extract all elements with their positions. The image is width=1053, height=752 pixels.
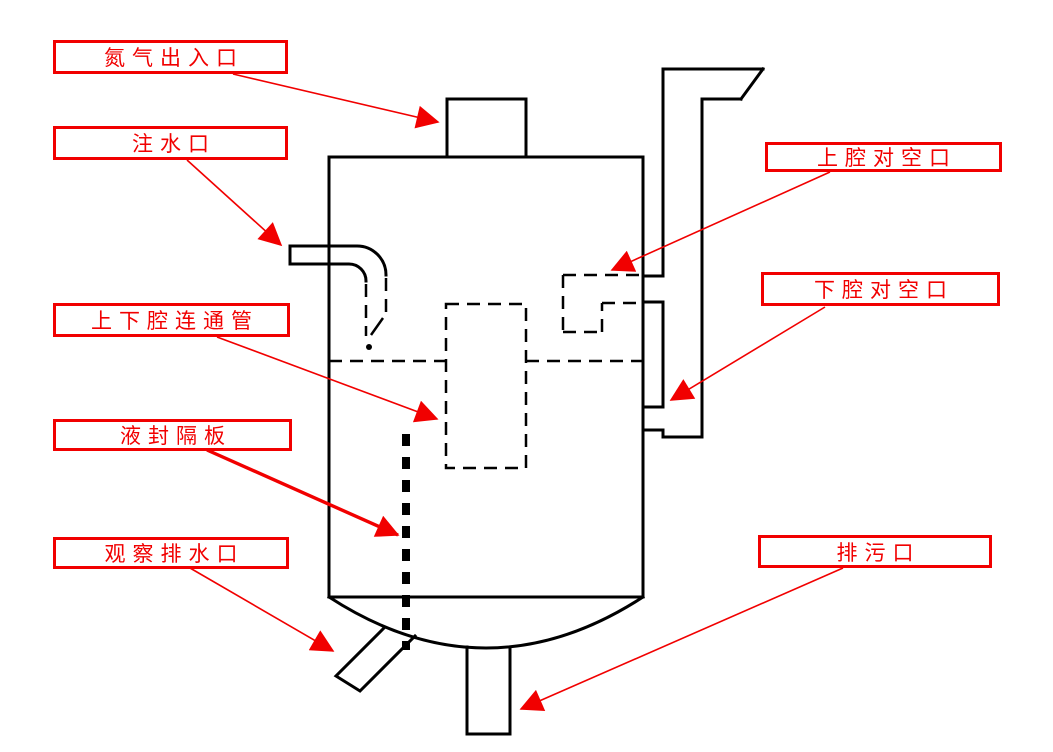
label-text-nitrogen-port: 氮气出入口 xyxy=(104,42,244,72)
pipe-break-dot xyxy=(366,344,372,350)
dished-bottom-head xyxy=(329,597,643,648)
leader-seal-baffle xyxy=(207,450,398,535)
connecting-pipe-hidden xyxy=(446,304,526,468)
label-text-connecting-pipe: 上下腔连通管 xyxy=(91,305,259,335)
vessel-annotation-diagram: 氮气出入口 注水口 上下腔连通管 液封隔板 观察排水口 上腔对空口 下腔对空口 … xyxy=(0,0,1053,752)
upper-vent-nozzle xyxy=(643,276,663,302)
leader-upper-vent xyxy=(612,172,830,270)
label-box-nitrogen-port: 氮气出入口 xyxy=(53,40,288,74)
label-text-upper-vent: 上腔对空口 xyxy=(817,142,957,172)
label-box-connecting-pipe: 上下腔连通管 xyxy=(53,303,290,337)
vent-standpipe xyxy=(663,69,763,437)
label-text-lower-vent: 下腔对空口 xyxy=(814,274,954,304)
label-box-observation-drain: 观察排水口 xyxy=(53,537,289,569)
tank-shell-outline xyxy=(329,157,643,597)
blowdown-nozzle xyxy=(467,647,510,734)
leader-connecting-pipe xyxy=(217,337,437,419)
leader-blowdown-port xyxy=(521,568,843,709)
vessel-line-drawing xyxy=(0,0,1053,752)
leader-lower-vent xyxy=(671,307,825,400)
label-text-observation-drain: 观察排水口 xyxy=(105,538,245,568)
lower-vent-nozzle xyxy=(645,407,663,430)
leader-water-inlet xyxy=(187,160,281,245)
label-text-blowdown-port: 排污口 xyxy=(837,537,921,567)
label-text-seal-baffle: 液封隔板 xyxy=(120,420,232,450)
upper-vent-passage-hidden xyxy=(563,275,643,332)
label-text-water-inlet: 注水口 xyxy=(132,128,216,158)
leader-nitrogen-port xyxy=(233,74,438,122)
pipe-break-mark xyxy=(371,318,383,335)
leader-observation-drain xyxy=(190,568,333,651)
water-inlet-pipe xyxy=(290,246,386,281)
label-box-lower-vent: 下腔对空口 xyxy=(761,272,1000,306)
label-box-seal-baffle: 液封隔板 xyxy=(53,419,292,451)
label-box-blowdown-port: 排污口 xyxy=(758,535,992,568)
label-box-upper-vent: 上腔对空口 xyxy=(765,142,1002,172)
nitrogen-nozzle xyxy=(447,99,526,157)
observation-drain-nozzle xyxy=(336,628,415,691)
label-box-water-inlet: 注水口 xyxy=(53,126,288,160)
